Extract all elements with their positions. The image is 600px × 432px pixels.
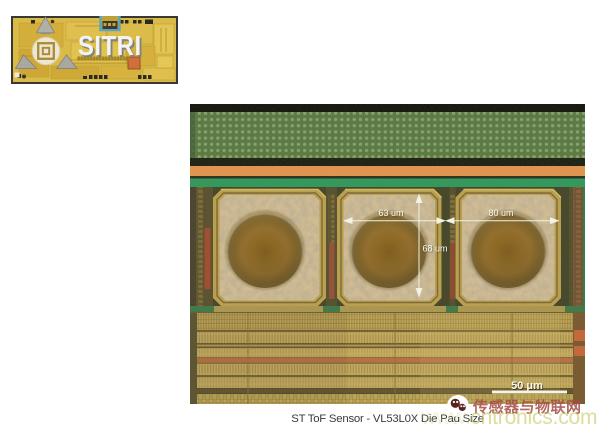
svg-text:50 μm: 50 μm [511,380,543,392]
svg-text:63 um: 63 um [378,208,403,218]
svg-text:68 um: 68 um [423,244,448,254]
svg-text:80 um: 80 um [488,208,513,218]
